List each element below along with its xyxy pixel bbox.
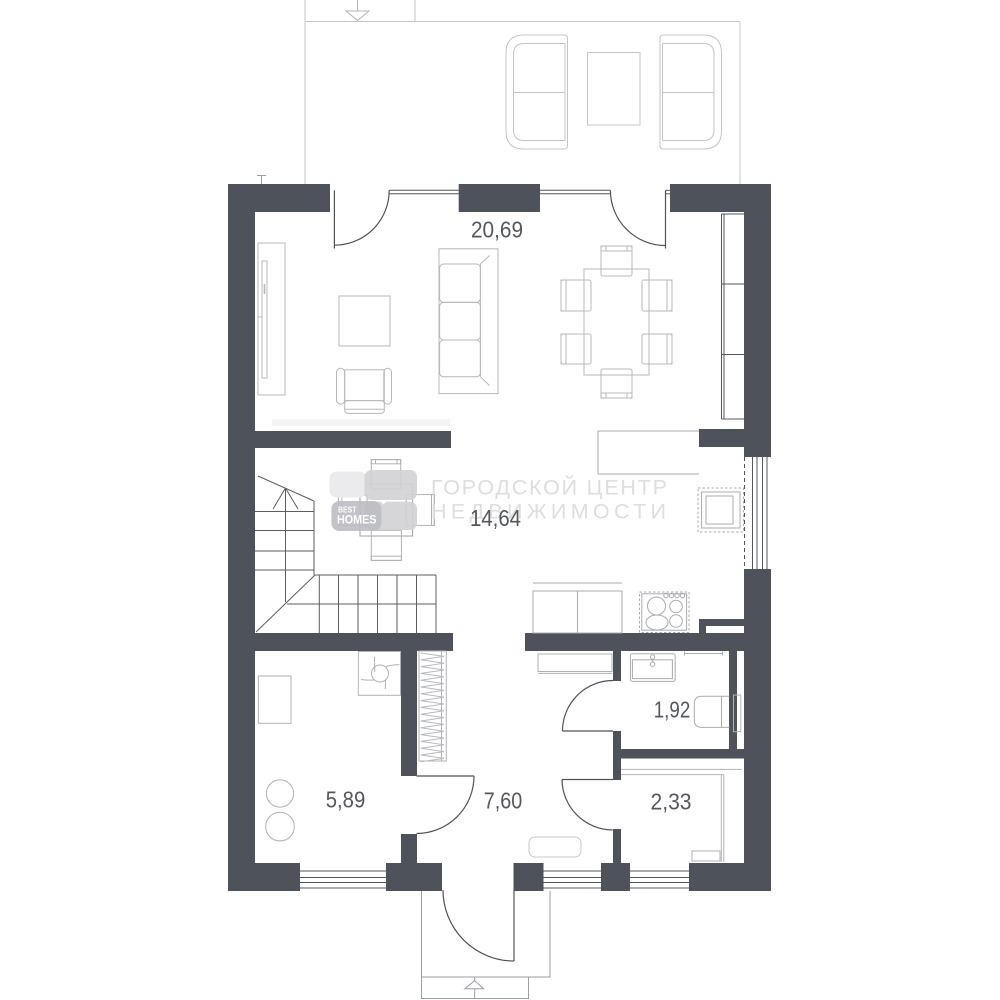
svg-text:14,64: 14,64	[470, 505, 521, 531]
svg-text:1,92: 1,92	[654, 697, 691, 723]
svg-text:2,33: 2,33	[651, 789, 692, 815]
svg-text:20,69: 20,69	[471, 217, 523, 243]
svg-text:5,89: 5,89	[326, 787, 366, 813]
svg-text:7,60: 7,60	[484, 788, 523, 814]
svg-text:ГОРОДСКОЙ ЦЕНТР: ГОРОДСКОЙ ЦЕНТР	[431, 475, 667, 500]
svg-text:HOMES: HOMES	[337, 513, 377, 527]
